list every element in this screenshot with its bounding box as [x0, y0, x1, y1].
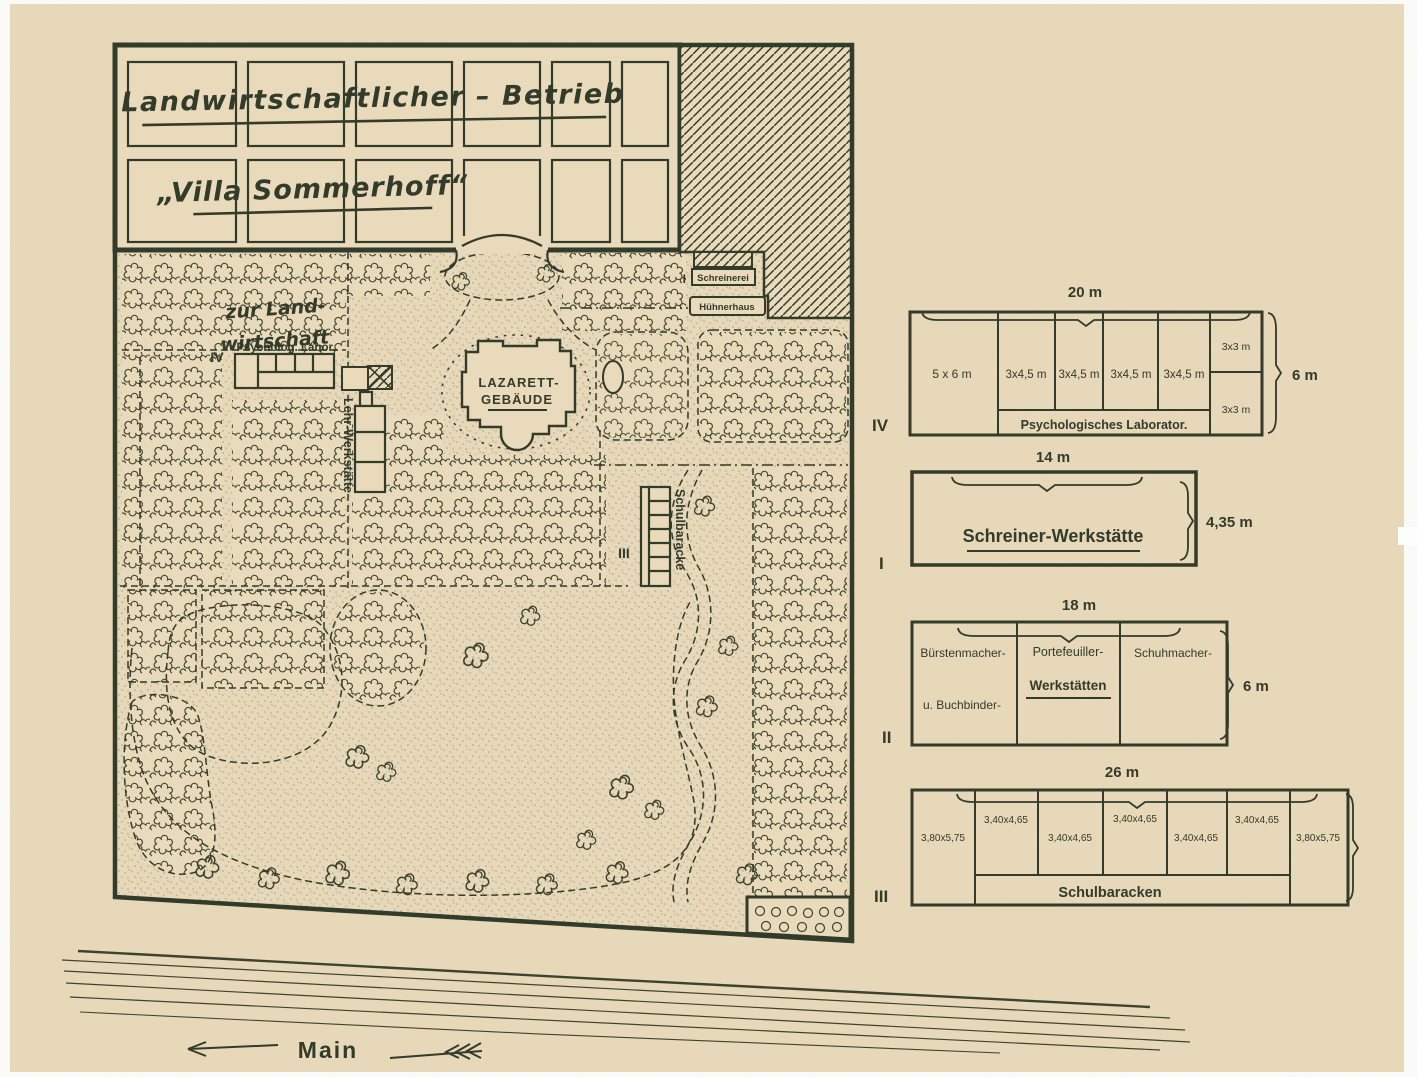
- lehr-werkstaette-label: Lehr-Werkstätte: [341, 398, 355, 493]
- plan-ii-width: 18 m: [1062, 597, 1096, 614]
- plan-iv-name: Psychologisches Laborator.: [1021, 418, 1188, 432]
- lazarett-label-line1: LAZARETT-: [478, 375, 559, 390]
- lehr-werkstaette-building: [355, 392, 385, 492]
- plan-ii-cell1-line2: u. Buchbinder-: [923, 698, 1001, 712]
- plan-iii-end-cell: 3,80x5,75: [921, 833, 965, 844]
- plan-ii-cell1-line1: Bürstenmacher-: [920, 646, 1005, 660]
- huehnerhaus-label: Hühnerhaus: [699, 302, 754, 313]
- plan-i-name: Schreiner-Werkstätte: [963, 526, 1144, 546]
- plan-ii-cell2-line1: Portefeuiller-: [1033, 645, 1104, 659]
- plan-iii-mid-cell: 3,40x4,65: [1235, 815, 1279, 826]
- plan-iv-small-cell: 3x3 m: [1222, 404, 1251, 416]
- plan-iii-mid-cell: 3,40x4,65: [984, 815, 1028, 826]
- plan-iv-cell: 5 x 6 m: [932, 367, 971, 381]
- plan-i-height: 4,35 m: [1206, 514, 1253, 531]
- plan-iv-marker: IV: [872, 416, 889, 435]
- plan-i-marker: I: [879, 554, 884, 573]
- plan-iv-cell: 3x4,5 m: [1111, 369, 1152, 381]
- schreinerei-label: Schreinerei: [697, 273, 749, 284]
- entrance-gap: [456, 236, 548, 254]
- plan-iii-name: Schulbaracken: [1058, 885, 1161, 901]
- plan-iii-mid-cell: 3,40x4,65: [1174, 833, 1218, 844]
- map-marker-iv: IV: [210, 349, 224, 365]
- annex-buildings: [342, 366, 392, 390]
- plan-iii-mid-cell: 3,40x4,65: [1048, 833, 1092, 844]
- plan-ii-cell2-line2: Werkstätten: [1029, 678, 1106, 693]
- plan-iv-cell: 3x4,5 m: [1059, 369, 1100, 381]
- plan-iv-cell: 3x4,5 m: [1006, 369, 1047, 381]
- plan-iv-small-cell: 3x3 m: [1222, 341, 1251, 353]
- scan-edge-notch: [1398, 527, 1417, 545]
- plan-iv-width: 20 m: [1068, 284, 1102, 301]
- map-marker-iii: III: [618, 545, 630, 561]
- scanned-page: Landwirtschaftlicher – Betrieb „Villa So…: [0, 0, 1417, 1077]
- plan-iii-marker: III: [874, 887, 888, 906]
- plan-i-width: 14 m: [1036, 449, 1070, 466]
- site-plan-drawing: Landwirtschaftlicher – Betrieb „Villa So…: [0, 0, 1417, 1077]
- plan-ii-marker: II: [882, 728, 891, 747]
- corner-garden-notch: [747, 897, 850, 939]
- plan-iii-width: 26 m: [1105, 764, 1139, 781]
- pond: [603, 361, 623, 393]
- plan-iii-mid-cell: 3,40x4,65: [1113, 814, 1157, 825]
- map-marker-i: I: [683, 272, 686, 286]
- plan-iv-cell: 3x4,5 m: [1164, 369, 1205, 381]
- plan-iv-height: 6 m: [1292, 367, 1318, 384]
- psych-lab-label: Psycholog. Labor.: [236, 342, 335, 354]
- schulbaracke-building: [641, 487, 670, 586]
- lazarett-label-line2: GEBÄUDE: [481, 392, 553, 407]
- plan-ii-cell3: Schuhmacher-: [1134, 646, 1212, 660]
- psych-lab-building: [235, 354, 334, 388]
- plan-ii-height: 6 m: [1243, 678, 1269, 695]
- river-name: Main: [298, 1037, 358, 1063]
- schulbaracke-label: Schulbaracke: [673, 489, 687, 570]
- plan-iii-end-cell: 3,80x5,75: [1296, 833, 1340, 844]
